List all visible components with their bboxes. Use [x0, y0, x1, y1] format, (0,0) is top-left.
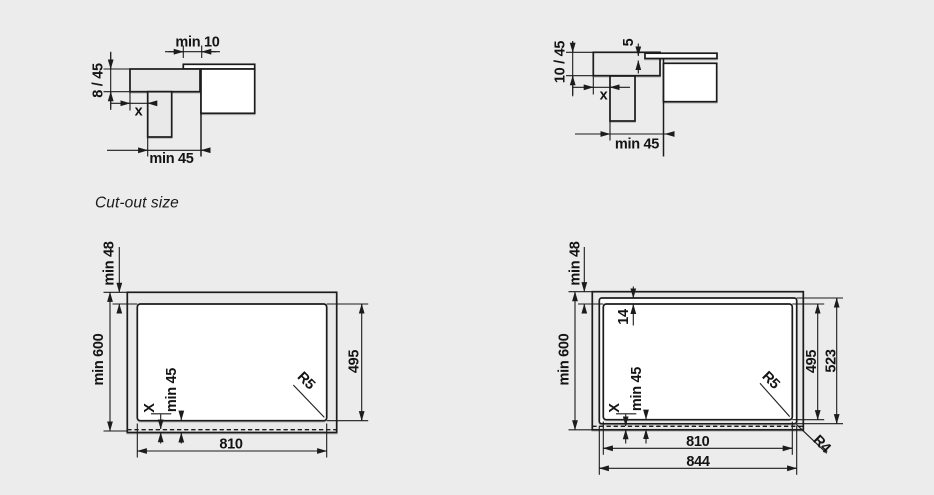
dim-label-x: X: [142, 403, 158, 413]
dim-label-min-depth: min 600: [556, 333, 572, 385]
dim-label-min-front: min 45: [629, 367, 645, 411]
dim-label-rebate-width: 14: [616, 309, 632, 325]
dim-worktop-thickness: 10 / 45: [553, 41, 595, 97]
diagram-surface-mount-section: min 10 8 / 45 x min 45: [91, 35, 255, 167]
worktop-section: [201, 69, 255, 113]
dim-label-min-back: min 48: [102, 241, 118, 285]
corner-radius-outer-callout: R4: [796, 424, 833, 456]
hob-body: [130, 69, 200, 92]
dim-label-recess-width: 844: [686, 454, 710, 470]
dim-label-min-depth: min 600: [91, 333, 107, 385]
diagram-flush-mount-section: 5 10 / 45 x min 45: [553, 38, 718, 156]
dim-min-depth: min 600: [556, 292, 592, 430]
dim-min-depth: min 600: [91, 292, 127, 431]
dim-label-worktop-thickness: 10 / 45: [553, 41, 569, 83]
dim-min-clearance: min 45: [575, 121, 674, 153]
dim-label-min-clearance: min 45: [615, 137, 659, 153]
dim-label-glass-gap: 5: [621, 38, 637, 46]
dim-label-cutout-height: 495: [346, 350, 362, 374]
glass-panel: [645, 53, 717, 58]
hob-lower-box: [610, 76, 635, 121]
worktop-section: [664, 63, 717, 101]
dim-min-clearance: min 45: [107, 138, 210, 167]
dim-label-corner-radius-outer: R4: [810, 432, 834, 456]
dim-label-min-overlap: min 10: [175, 35, 219, 51]
hob-lower-box: [148, 92, 172, 137]
dim-label-cutout-width: 810: [219, 437, 243, 453]
installation-drawing-page: min 10 8 / 45 x min 45: [0, 0, 934, 495]
dim-min-overlap: min 10: [165, 35, 220, 59]
diagram-cutout-plan: min 600 min 48 495 810: [91, 241, 368, 457]
dim-label-recess-height: 523: [823, 349, 839, 373]
dim-label-min-back: min 48: [567, 241, 583, 285]
dim-label-min-clearance: min 45: [149, 151, 193, 167]
dim-label-x: x: [600, 87, 608, 103]
dim-worktop-thickness: 8 / 45: [91, 52, 131, 110]
diagram-flush-cutout-plan: min 600 min 48 14 495 523: [556, 241, 843, 475]
dim-label-worktop-thickness: 8 / 45: [91, 63, 107, 98]
dim-label-cutout-height: 495: [804, 350, 820, 374]
section-caption: Cut-out size: [95, 195, 179, 212]
dim-label-cutout-width: 810: [686, 434, 710, 450]
dim-label-x: x: [135, 103, 143, 119]
dim-label-x: X: [607, 403, 623, 413]
technical-drawing-canvas: min 10 8 / 45 x min 45: [0, 0, 934, 495]
dim-min-front: min 45: [629, 367, 646, 444]
dim-label-min-front: min 45: [164, 368, 180, 412]
